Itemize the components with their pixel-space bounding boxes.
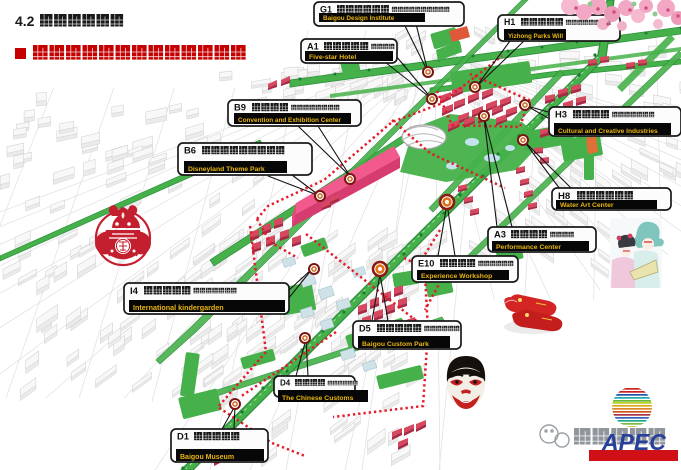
svg-text:International kindergarden: International kindergarden bbox=[133, 303, 224, 312]
svg-text:Baigou Museum: Baigou Museum bbox=[180, 454, 234, 461]
svg-text:D4: D4 bbox=[280, 378, 291, 387]
svg-text:B6: B6 bbox=[184, 145, 196, 156]
svg-text:Experience Workshop: Experience Workshop bbox=[421, 273, 492, 280]
svg-text:D1: D1 bbox=[177, 431, 189, 442]
svg-text:Performance Center: Performance Center bbox=[496, 244, 561, 251]
svg-text:A1: A1 bbox=[307, 42, 319, 52]
svg-text:H1: H1 bbox=[504, 17, 515, 27]
svg-text:H3: H3 bbox=[555, 109, 567, 120]
svg-text:Five-star Hotel: Five-star Hotel bbox=[309, 54, 356, 61]
svg-text:4.2: 4.2 bbox=[15, 13, 35, 29]
svg-text:Yizhong Parks Will: Yizhong Parks Will bbox=[508, 33, 563, 40]
svg-text:APEC: APEC bbox=[601, 429, 666, 455]
svg-text:Baigou Custom Park: Baigou Custom Park bbox=[362, 341, 429, 348]
svg-text:Disneyland Theme Park: Disneyland Theme Park bbox=[188, 166, 265, 173]
svg-text:E10: E10 bbox=[418, 259, 434, 269]
svg-text:Cultural and Creative Industri: Cultural and Creative Industries bbox=[558, 128, 658, 135]
svg-text:The Chinese Customs: The Chinese Customs bbox=[282, 395, 354, 402]
svg-text:I4: I4 bbox=[130, 286, 139, 297]
svg-text:G1: G1 bbox=[320, 4, 332, 14]
svg-text:B9: B9 bbox=[234, 102, 246, 113]
svg-text:A3: A3 bbox=[494, 229, 506, 240]
svg-text:D5: D5 bbox=[359, 324, 371, 334]
svg-text:Baigou Design Institute: Baigou Design Institute bbox=[323, 15, 395, 22]
svg-text:Convention and Exhibition Cen: Convention and Exhibition Center bbox=[238, 117, 341, 124]
svg-text:Water Art Center: Water Art Center bbox=[560, 202, 614, 209]
